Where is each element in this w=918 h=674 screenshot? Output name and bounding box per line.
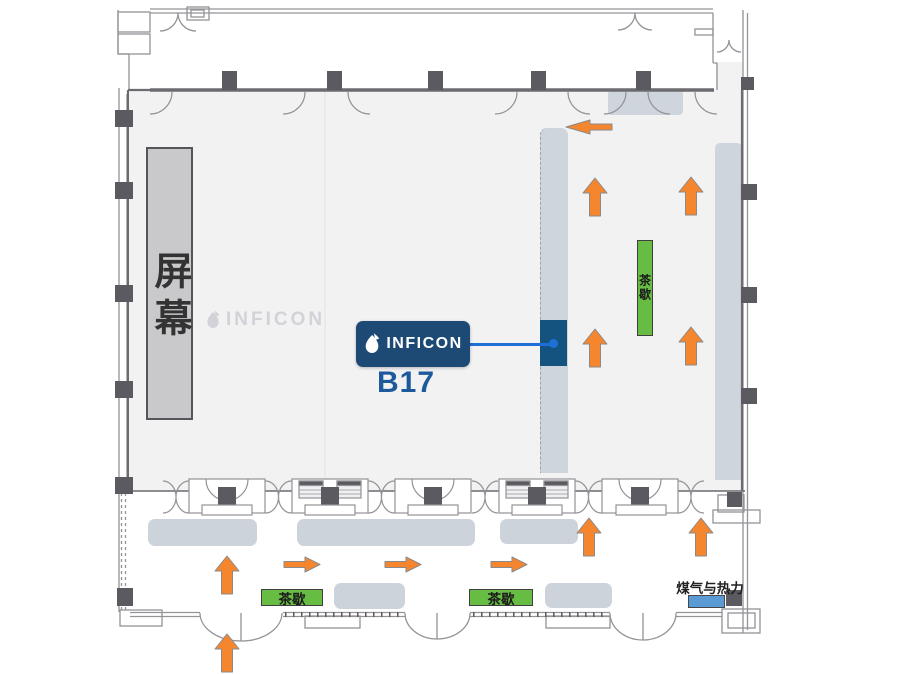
booth-id-label: B17: [368, 366, 444, 400]
gas-heat-label: 煤气与热力: [664, 577, 756, 597]
inficon-booth-badge[interactable]: INFICON: [356, 321, 470, 367]
booth-connector-dot: [549, 339, 558, 348]
booth-connector-line: [470, 343, 553, 346]
tea-break-station: 茶歇: [261, 589, 323, 606]
tea-break-label: 茶歇: [279, 588, 306, 608]
exhibition-floorplan: 屏幕 INFICON: [0, 0, 918, 674]
tea-break-station: 茶歇: [469, 589, 533, 606]
tea-break-label: 茶歇: [637, 274, 654, 302]
inficon-droplet-icon: [363, 332, 381, 356]
badge-brand-text: INFICON: [386, 335, 462, 353]
tea-break-station: 茶歇: [637, 240, 653, 336]
tea-break-label: 茶歇: [488, 588, 515, 608]
gas-heat-unit: [688, 595, 725, 608]
